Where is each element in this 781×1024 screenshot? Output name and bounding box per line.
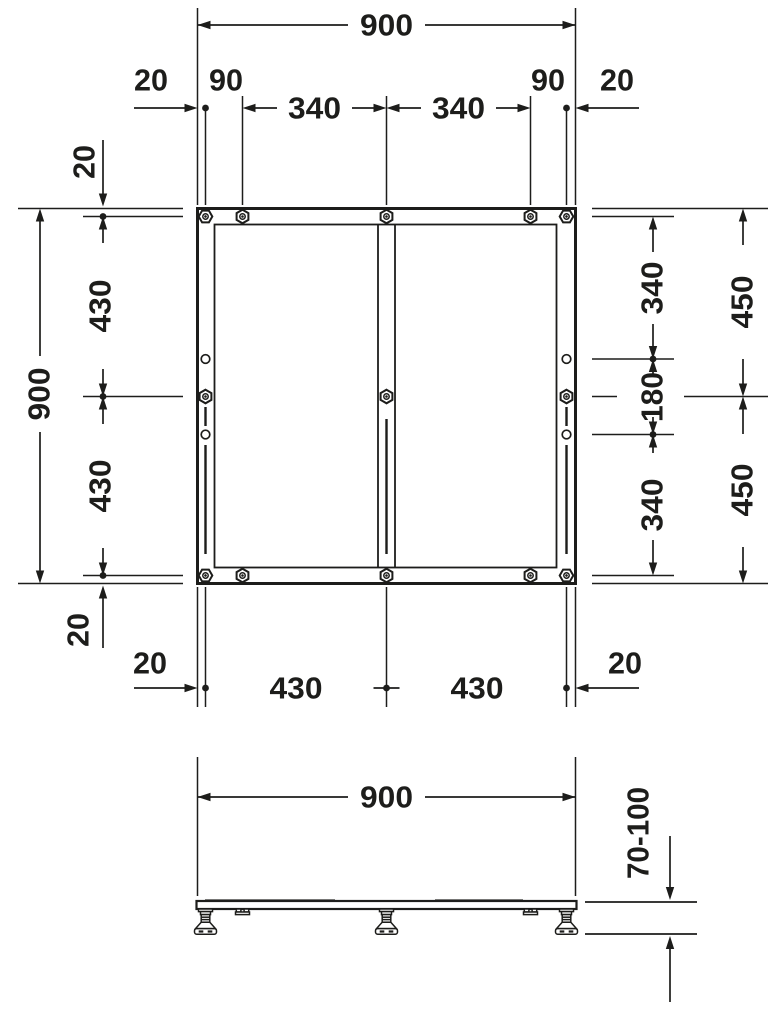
dim-chain-bottom: 20 430 430 20 [133,587,642,707]
label-20-bottom-left: 20 [133,646,167,681]
adjustable-foot [556,909,578,934]
hex-bolt [525,569,537,583]
label-20-left-top: 20 [67,145,102,179]
label-340-right-top: 340 [635,262,670,315]
label-430-bottom-right: 430 [451,671,504,706]
hex-bolt [381,210,393,224]
screw-hole [562,355,571,364]
dim-chain-left: 20 430 430 20 [61,140,184,648]
hex-bolt [200,390,212,404]
adjustable-feet [195,909,578,934]
screw-hole [562,430,571,439]
dim-height-70-100: 70-100 [585,787,697,1002]
label-70-100: 70-100 [621,787,656,879]
dim-chain-right-outer: 450 450 [592,209,768,584]
side-view [195,899,578,934]
adjustable-foot [376,909,398,934]
screw-hole [201,430,210,439]
label-340-right-bottom: 340 [635,479,670,532]
dim-chain-top: 20 90 340 340 90 20 [134,63,639,206]
side-rail [197,901,577,909]
label-900-side: 900 [360,780,413,815]
label-90-top-right: 90 [531,63,565,98]
label-900-top: 900 [360,8,413,43]
label-450-right-bottom: 450 [725,464,760,517]
label-90-top-left: 90 [209,63,243,98]
hex-bolt [237,569,249,583]
label-340-top-left: 340 [288,91,341,126]
hex-bolt [237,210,249,224]
label-340-top-right: 340 [432,91,485,126]
label-430-bottom-left: 430 [270,671,323,706]
label-430-left-bottom: 430 [83,460,118,513]
label-450-right-top: 450 [725,276,760,329]
label-900-left: 900 [22,368,57,421]
technical-drawing-page: 900 20 90 340 340 90 20 [0,0,781,1024]
dim-900-side: 900 [198,757,576,896]
label-20-top-right: 20 [600,63,634,98]
adjustable-foot [195,909,217,934]
label-180-right: 180 [635,372,670,422]
hex-bolt [381,569,393,583]
hex-bolt [525,210,537,224]
label-430-left-top: 430 [83,280,118,333]
label-20-left-bottom: 20 [61,613,96,647]
hex-bolt [381,390,393,404]
screw-hole [201,355,210,364]
top-view-frame [197,208,576,585]
hex-bolt [561,390,573,404]
label-20-top-left: 20 [134,63,168,98]
technical-drawing-canvas: 900 20 90 340 340 90 20 [0,0,781,1024]
label-20-bottom-right: 20 [608,646,642,681]
